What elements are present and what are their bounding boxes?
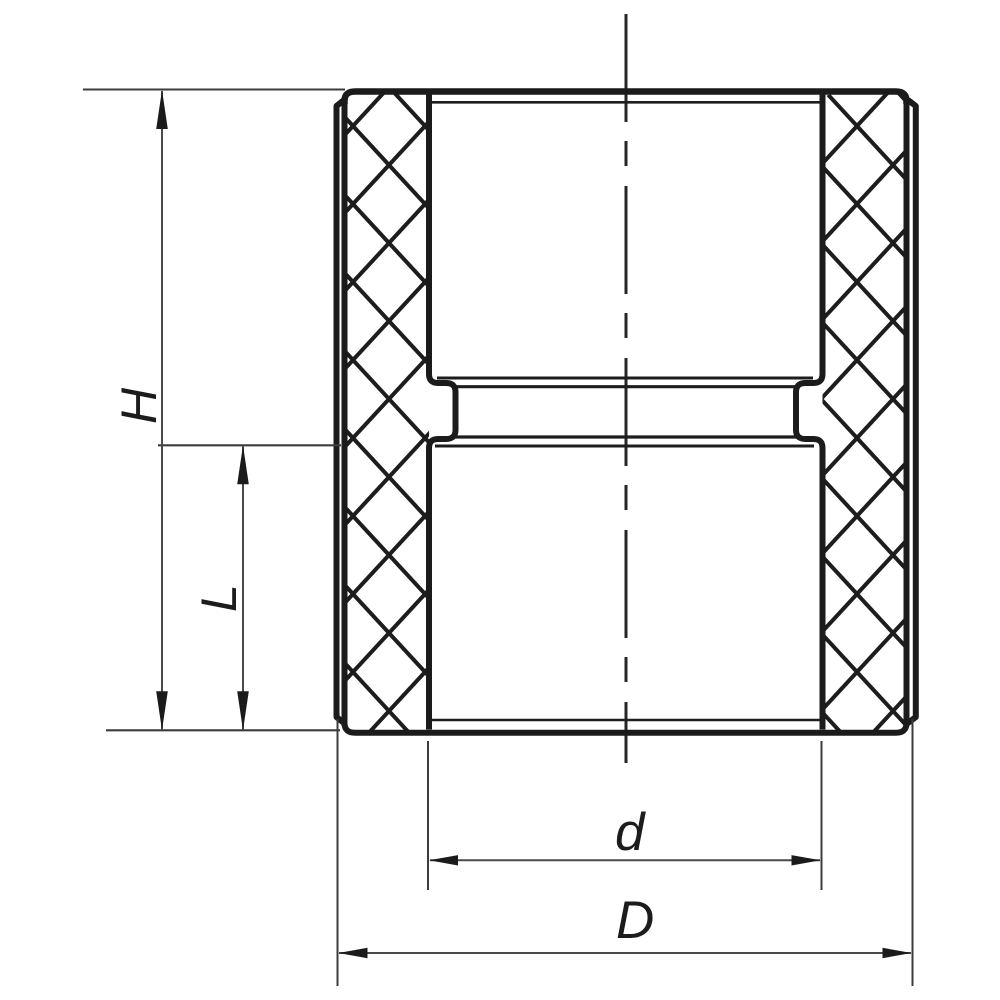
svg-text:D: D — [616, 891, 654, 950]
svg-text:H: H — [111, 387, 167, 424]
svg-text:d: d — [615, 803, 646, 862]
svg-text:L: L — [191, 584, 247, 612]
